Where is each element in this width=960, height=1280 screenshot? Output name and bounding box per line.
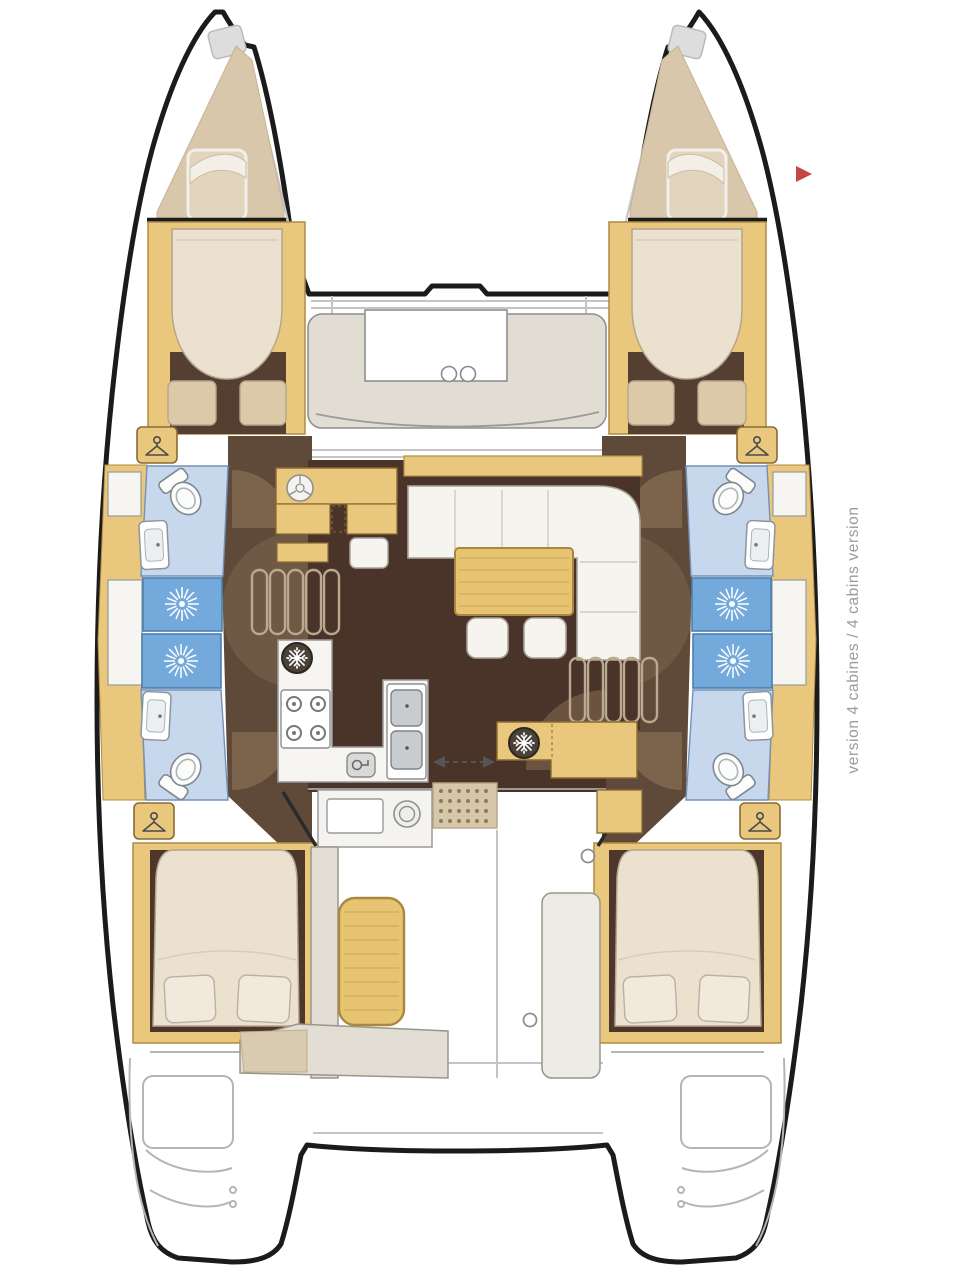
floorplan-page: version 4 cabines / 4 cabins version (0, 0, 960, 1280)
forward-cockpit-seat-cutout (365, 310, 507, 381)
cockpit-bench-starboard (542, 893, 600, 1078)
galley-sink (387, 684, 426, 779)
salon-stool (524, 618, 566, 658)
cockpit-counter-wood (597, 790, 642, 833)
catamaran-floorplan: version 4 cabines / 4 cabins version (0, 0, 960, 1280)
cockpit-galley-module (318, 790, 432, 847)
nav-seat (350, 538, 388, 568)
salon-forward-shelf (404, 456, 642, 476)
cupholder-icon (442, 367, 457, 382)
salon-table (455, 548, 573, 615)
nav-instrument-icon (287, 475, 313, 501)
faucet-icon (347, 753, 375, 777)
door-mat (433, 783, 497, 828)
forward-cockpit (308, 310, 606, 428)
transom-walkway (240, 1030, 307, 1072)
cockpit-table (339, 898, 404, 1025)
salon (252, 456, 657, 792)
salon-stool (467, 618, 508, 658)
cupholder-icon (461, 367, 476, 382)
fridge-snowflake-icon (509, 728, 539, 758)
version-label: version 4 cabines / 4 cabins version (845, 506, 862, 773)
stove-burners-icon (281, 690, 330, 748)
fridge-snowflake-icon (282, 643, 312, 673)
